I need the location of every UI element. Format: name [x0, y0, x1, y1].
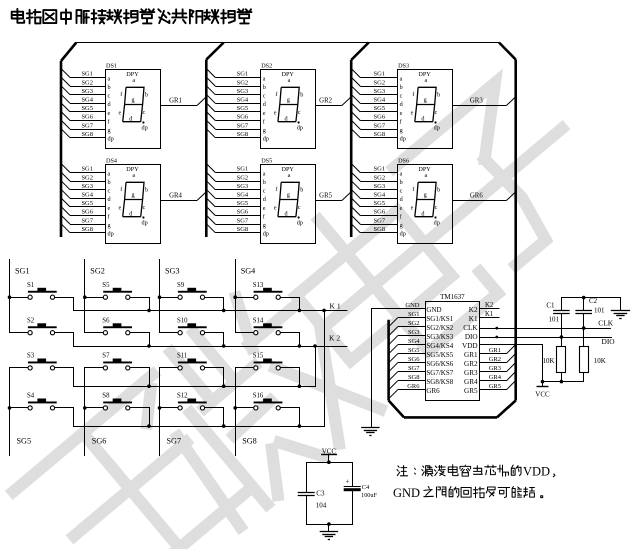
svg-text:VCC: VCC	[535, 391, 550, 399]
svg-text:GR3: GR3	[470, 98, 483, 105]
svg-text:GR6: GR6	[426, 387, 440, 395]
svg-text:SG2: SG2	[408, 320, 420, 327]
svg-text:GR5: GR5	[464, 387, 478, 395]
svg-text:DIO: DIO	[465, 333, 478, 341]
svg-text:f: f	[263, 118, 266, 125]
svg-text:g: g	[424, 96, 427, 103]
svg-text:e: e	[119, 205, 122, 212]
svg-text:SG1: SG1	[81, 166, 93, 173]
svg-text:SG6: SG6	[237, 114, 249, 121]
svg-text:SG2: SG2	[374, 174, 386, 181]
svg-text:a: a	[425, 77, 428, 84]
svg-text:GND: GND	[405, 302, 419, 309]
svg-text:SG8: SG8	[81, 131, 93, 138]
svg-text:b: b	[400, 84, 403, 91]
svg-text:c: c	[400, 188, 403, 195]
svg-text:dp: dp	[142, 220, 148, 227]
svg-text:a: a	[263, 170, 266, 177]
svg-text:g: g	[287, 96, 290, 103]
svg-text:SG5: SG5	[374, 200, 386, 207]
svg-text:GR3: GR3	[489, 365, 501, 372]
svg-text:K2: K2	[485, 302, 494, 309]
svg-text:dp: dp	[142, 125, 148, 132]
svg-text:GR4: GR4	[489, 374, 502, 381]
svg-text:C3: C3	[316, 490, 325, 498]
svg-text:10K: 10K	[542, 357, 554, 365]
svg-text:g: g	[400, 222, 403, 229]
svg-text:a: a	[108, 170, 111, 177]
svg-text:SG8: SG8	[237, 226, 249, 233]
svg-text:VDD: VDD	[462, 342, 478, 350]
svg-text:SG8/KS8: SG8/KS8	[426, 378, 453, 386]
svg-text:SG2: SG2	[237, 79, 249, 86]
svg-text:TM1637: TM1637	[440, 293, 465, 301]
svg-text:SG2/KS2: SG2/KS2	[426, 324, 453, 332]
svg-text:e: e	[411, 110, 414, 117]
svg-text:a: a	[108, 75, 111, 82]
svg-text:SG4: SG4	[81, 192, 93, 199]
svg-text:SG3/KS3: SG3/KS3	[426, 333, 453, 341]
svg-text:SG4: SG4	[408, 338, 420, 345]
svg-text:DS1: DS1	[106, 63, 117, 70]
svg-text:GR4: GR4	[464, 378, 478, 386]
svg-text:SG5: SG5	[81, 105, 93, 112]
svg-text:b: b	[400, 179, 403, 186]
svg-text:e: e	[400, 110, 403, 117]
svg-text:a: a	[400, 75, 403, 82]
svg-text:SG8: SG8	[81, 226, 93, 233]
svg-text:GR4: GR4	[169, 193, 182, 200]
svg-text:S5: S5	[102, 282, 110, 289]
svg-text:SG5: SG5	[81, 200, 93, 207]
svg-text:SG1: SG1	[374, 166, 386, 173]
svg-text:f: f	[120, 186, 123, 193]
svg-text:S9: S9	[177, 282, 185, 289]
svg-text:a: a	[263, 75, 266, 82]
svg-text:f: f	[400, 118, 403, 125]
svg-text:g: g	[424, 191, 427, 198]
svg-text:SG6: SG6	[374, 114, 386, 121]
svg-text:DIO: DIO	[602, 337, 616, 346]
svg-text:e: e	[263, 110, 266, 117]
svg-text:SG3: SG3	[81, 183, 93, 190]
svg-text:a: a	[425, 172, 428, 179]
svg-text:c: c	[298, 204, 301, 211]
svg-text:SG4: SG4	[237, 192, 249, 199]
svg-text:S15: S15	[253, 353, 264, 360]
svg-text:d: d	[400, 101, 404, 108]
svg-text:f: f	[263, 213, 266, 220]
svg-text:K1: K1	[485, 311, 493, 318]
svg-text:d: d	[263, 101, 267, 108]
svg-text:GR5: GR5	[489, 383, 501, 390]
svg-text:GND: GND	[393, 486, 420, 500]
svg-text:GR6: GR6	[407, 383, 420, 390]
svg-text:100uF: 100uF	[361, 492, 377, 499]
svg-text:g: g	[263, 127, 266, 134]
svg-text:c: c	[435, 109, 438, 116]
svg-text:DS4: DS4	[106, 158, 117, 165]
svg-text:SG4: SG4	[374, 192, 386, 199]
svg-text:S11: S11	[177, 353, 187, 360]
svg-text:10K: 10K	[594, 357, 606, 365]
svg-text:b: b	[263, 84, 266, 91]
svg-text:dp: dp	[108, 231, 114, 238]
svg-text:S1: S1	[27, 282, 34, 289]
svg-text:S16: S16	[253, 393, 264, 400]
svg-text:dp: dp	[400, 136, 406, 143]
svg-text:S3: S3	[27, 353, 35, 360]
svg-text:GR3: GR3	[464, 369, 478, 377]
svg-text:e: e	[411, 205, 414, 212]
svg-text:c: c	[400, 93, 403, 100]
svg-text:SG3: SG3	[237, 88, 249, 95]
svg-text:f: f	[276, 186, 279, 193]
svg-text:g: g	[132, 191, 135, 198]
svg-text:K2: K2	[469, 306, 478, 314]
svg-text:DS6: DS6	[398, 158, 409, 165]
svg-text:dp: dp	[434, 125, 440, 132]
svg-text:f: f	[120, 91, 123, 98]
svg-text:SG7: SG7	[167, 437, 182, 446]
svg-text:GR1: GR1	[169, 98, 182, 105]
svg-text:S12: S12	[177, 393, 188, 400]
svg-text:b: b	[300, 92, 303, 99]
svg-text:e: e	[400, 205, 403, 212]
svg-text:SG4: SG4	[81, 97, 93, 104]
svg-text:c: c	[263, 188, 266, 195]
svg-text:SG1: SG1	[15, 267, 30, 276]
svg-text:c: c	[298, 109, 301, 116]
svg-text:SG7: SG7	[374, 217, 386, 224]
svg-text:dp: dp	[297, 125, 303, 132]
svg-text:d: d	[108, 196, 112, 203]
svg-text:SG1/KS1: SG1/KS1	[426, 315, 453, 323]
svg-text:+: +	[346, 478, 350, 486]
svg-text:SG5/KS5: SG5/KS5	[426, 351, 453, 359]
svg-text:e: e	[108, 205, 111, 212]
svg-text:b: b	[145, 187, 148, 194]
svg-text:c: c	[108, 93, 111, 100]
svg-text:S6: S6	[102, 317, 110, 324]
svg-text:SG6: SG6	[374, 209, 386, 216]
svg-text:GND: GND	[426, 306, 441, 314]
svg-text:g: g	[108, 127, 111, 134]
svg-text:e: e	[119, 110, 122, 117]
svg-text:S13: S13	[253, 282, 264, 289]
svg-text:d: d	[263, 196, 267, 203]
svg-text:SG2: SG2	[81, 174, 93, 181]
svg-text:SG1: SG1	[81, 71, 93, 78]
svg-text:SG7: SG7	[408, 365, 420, 372]
svg-text:S7: S7	[102, 353, 110, 360]
svg-text:GR5: GR5	[319, 193, 332, 200]
svg-text:b: b	[263, 179, 266, 186]
svg-text:f: f	[276, 91, 279, 98]
svg-text:a: a	[288, 172, 291, 179]
svg-text:a: a	[132, 172, 135, 179]
svg-text:DS5: DS5	[261, 158, 272, 165]
svg-text:c: c	[108, 188, 111, 195]
svg-text:S2: S2	[27, 317, 35, 324]
svg-text:SG8: SG8	[408, 374, 420, 381]
svg-text:SG2: SG2	[237, 174, 249, 181]
svg-text:e: e	[108, 110, 111, 117]
svg-text:SG6: SG6	[92, 437, 107, 446]
svg-text:S14: S14	[253, 317, 264, 324]
svg-text:SG4/KS4: SG4/KS4	[426, 342, 453, 350]
svg-text:SG6/KS6: SG6/KS6	[426, 360, 453, 368]
svg-text:DS2: DS2	[261, 63, 272, 70]
svg-text:SG3: SG3	[374, 183, 386, 190]
svg-text:SG4: SG4	[237, 97, 249, 104]
svg-text:e: e	[263, 205, 266, 212]
svg-text:SG6: SG6	[81, 114, 93, 121]
svg-text:SG5: SG5	[237, 200, 249, 207]
svg-text:SG8: SG8	[242, 437, 257, 446]
svg-text:SG8: SG8	[374, 226, 386, 233]
svg-text:GR6: GR6	[470, 193, 483, 200]
svg-text:GR1: GR1	[489, 347, 501, 354]
svg-text:K 1: K 1	[330, 302, 341, 311]
svg-text:a: a	[288, 77, 291, 84]
svg-text:g: g	[287, 191, 290, 198]
svg-text:c: c	[263, 93, 266, 100]
svg-text:CLK: CLK	[463, 324, 478, 332]
svg-text:a: a	[400, 170, 403, 177]
svg-text:b: b	[108, 179, 111, 186]
svg-text:SG6: SG6	[81, 209, 93, 216]
svg-text:f: f	[412, 186, 415, 193]
svg-text:f: f	[108, 213, 111, 220]
svg-text:SG3: SG3	[165, 267, 180, 276]
svg-text:S8: S8	[102, 393, 110, 400]
svg-text:C2: C2	[589, 297, 598, 305]
svg-text:101: 101	[549, 316, 560, 324]
svg-text:SG3: SG3	[237, 183, 249, 190]
svg-text:SG1: SG1	[237, 166, 249, 173]
svg-text:SG5: SG5	[374, 105, 386, 112]
svg-text:d: d	[108, 101, 112, 108]
svg-text:SG1: SG1	[237, 71, 249, 78]
svg-text:g: g	[400, 127, 403, 134]
svg-text:b: b	[145, 92, 148, 99]
svg-text:SG8: SG8	[237, 131, 249, 138]
svg-text:dp: dp	[297, 220, 303, 227]
svg-text:S4: S4	[27, 393, 35, 400]
svg-text:c: c	[143, 109, 146, 116]
svg-text:GR2: GR2	[464, 360, 478, 368]
svg-text:SG7: SG7	[81, 122, 93, 129]
svg-text:SG4: SG4	[374, 97, 386, 104]
svg-text:VDD: VDD	[523, 465, 550, 479]
svg-text:SG5: SG5	[408, 347, 420, 354]
svg-text:SG7: SG7	[237, 122, 249, 129]
svg-text:g: g	[263, 222, 266, 229]
svg-text:SG5: SG5	[17, 437, 32, 446]
svg-text:SG3: SG3	[374, 88, 386, 95]
svg-text:dp: dp	[400, 231, 406, 238]
svg-text:SG6: SG6	[408, 356, 420, 363]
svg-text:SG3: SG3	[408, 329, 420, 336]
svg-text:SG1: SG1	[408, 311, 420, 318]
svg-text:SG1: SG1	[374, 71, 386, 78]
svg-text:GR2: GR2	[319, 98, 332, 105]
svg-text:d: d	[400, 196, 404, 203]
svg-text:SG2: SG2	[90, 267, 105, 276]
svg-text:SG6: SG6	[237, 209, 249, 216]
svg-text:104: 104	[316, 502, 327, 510]
svg-text:GR1: GR1	[464, 351, 478, 359]
svg-text:DS3: DS3	[398, 63, 409, 70]
svg-text:dp: dp	[108, 136, 114, 143]
svg-text:SG7/KS7: SG7/KS7	[426, 369, 453, 377]
svg-text:b: b	[437, 92, 440, 99]
svg-text:C4: C4	[362, 484, 370, 491]
svg-text:e: e	[274, 205, 277, 212]
svg-text:CLK: CLK	[598, 319, 613, 328]
svg-text:C1: C1	[546, 302, 555, 310]
svg-text:GR2: GR2	[489, 356, 501, 363]
svg-text:g: g	[132, 96, 135, 103]
svg-text:f: f	[412, 91, 415, 98]
svg-text:K1: K1	[469, 315, 478, 323]
svg-text:e: e	[274, 110, 277, 117]
svg-text:b: b	[437, 187, 440, 194]
svg-text:SG7: SG7	[81, 217, 93, 224]
svg-text:101: 101	[594, 307, 605, 315]
svg-text:SG8: SG8	[374, 131, 386, 138]
svg-text:SG2: SG2	[374, 79, 386, 86]
svg-text:b: b	[300, 187, 303, 194]
svg-text:dp: dp	[263, 136, 269, 143]
svg-text:dp: dp	[263, 231, 269, 238]
svg-text:f: f	[108, 118, 111, 125]
svg-text:c: c	[435, 204, 438, 211]
svg-text:SG3: SG3	[81, 88, 93, 95]
svg-text:K 2: K 2	[329, 334, 340, 343]
svg-text:c: c	[143, 204, 146, 211]
svg-text:g: g	[108, 222, 111, 229]
svg-text:SG4: SG4	[241, 267, 256, 276]
svg-text:SG2: SG2	[81, 79, 93, 86]
svg-text:SG7: SG7	[237, 217, 249, 224]
svg-text:SG7: SG7	[374, 122, 386, 129]
svg-text:b: b	[108, 84, 111, 91]
svg-text:dp: dp	[434, 220, 440, 227]
svg-text:S10: S10	[177, 317, 188, 324]
svg-text:a: a	[132, 77, 135, 84]
svg-text:SG5: SG5	[237, 105, 249, 112]
